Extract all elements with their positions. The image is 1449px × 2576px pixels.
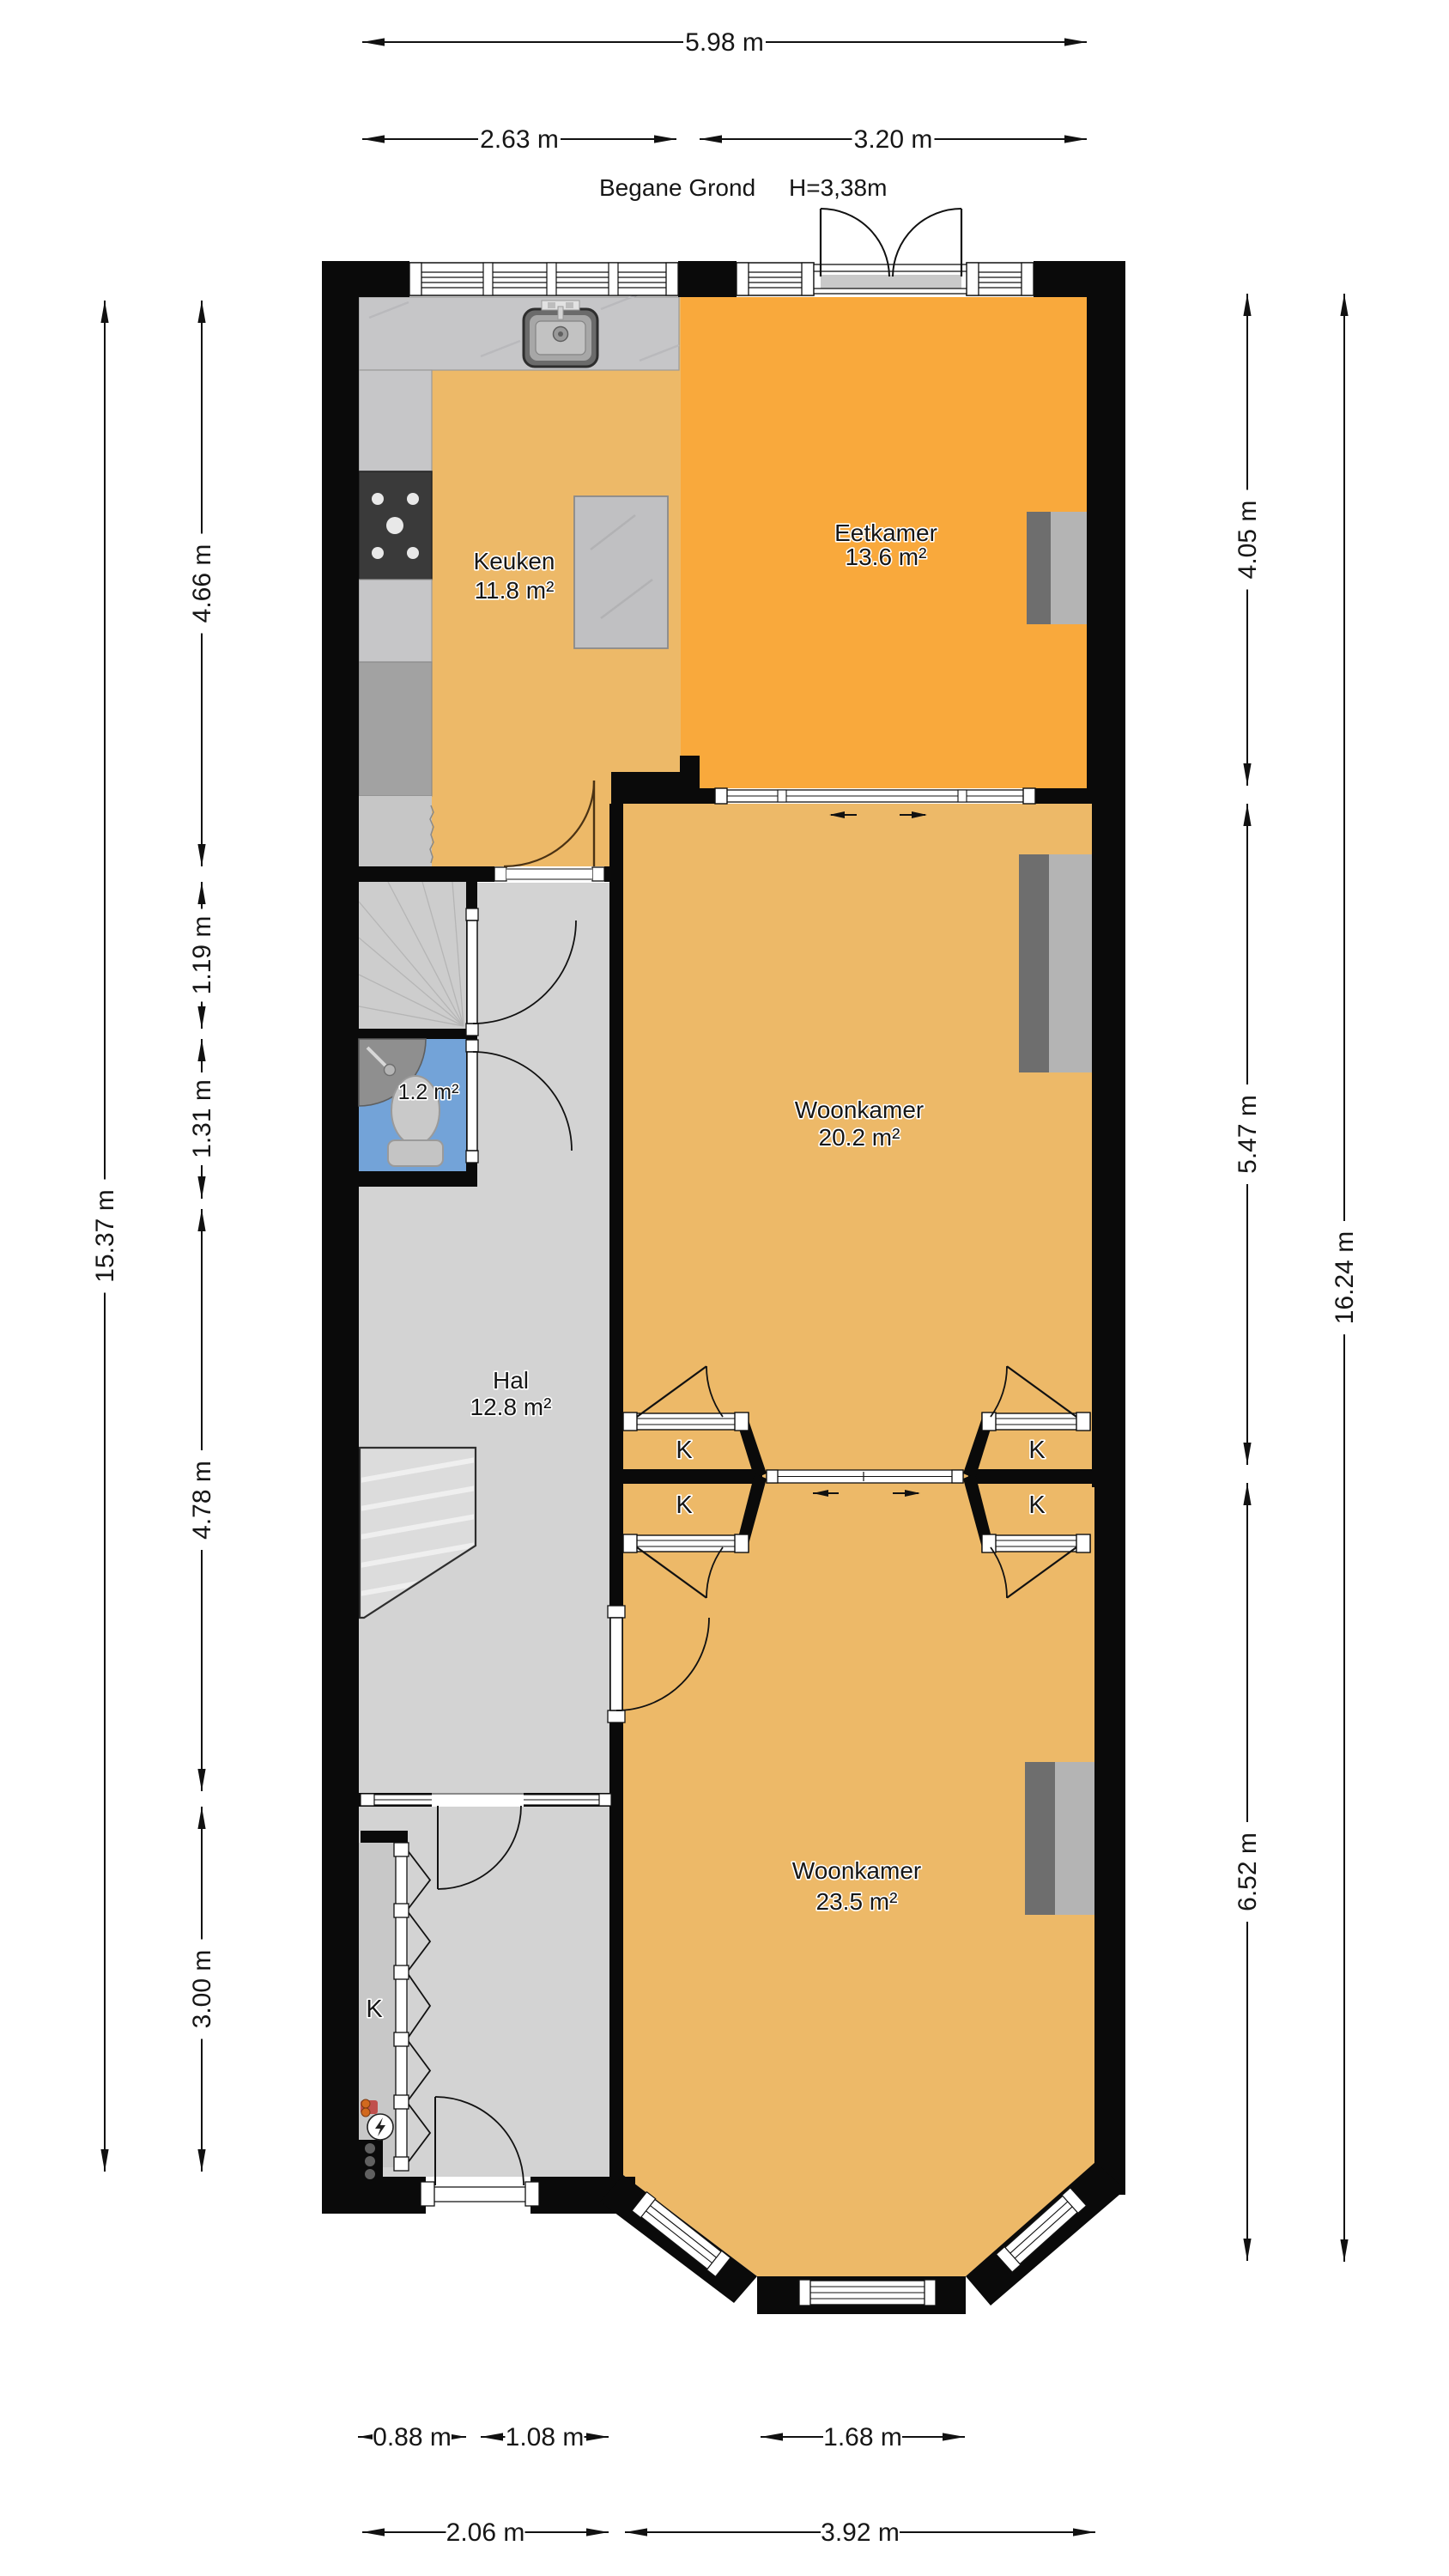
svg-text:20.2 m²: 20.2 m²: [819, 1124, 900, 1151]
svg-text:3.20 m: 3.20 m: [854, 125, 933, 154]
svg-text:6.52 m: 6.52 m: [1234, 1832, 1262, 1911]
svg-text:5.47 m: 5.47 m: [1234, 1095, 1262, 1174]
svg-text:16.24 m: 16.24 m: [1331, 1231, 1359, 1324]
svg-text:23.5 m²: 23.5 m²: [816, 1888, 898, 1915]
svg-text:Woonkamer: Woonkamer: [792, 1857, 921, 1884]
svg-text:0.88 m: 0.88 m: [373, 2423, 452, 2451]
svg-text:Eetkamer: Eetkamer: [834, 519, 937, 546]
svg-text:Woonkamer: Woonkamer: [795, 1097, 924, 1123]
svg-text:K: K: [366, 1996, 383, 2023]
svg-text:4.05 m: 4.05 m: [1234, 501, 1262, 580]
svg-text:K: K: [1028, 1492, 1046, 1519]
svg-text:2.06 m: 2.06 m: [446, 2518, 525, 2547]
svg-text:K: K: [676, 1492, 693, 1519]
svg-text:K: K: [676, 1437, 693, 1464]
svg-text:12.8 m²: 12.8 m²: [470, 1394, 552, 1420]
svg-text:Hal: Hal: [493, 1367, 529, 1394]
svg-text:4.66 m: 4.66 m: [188, 544, 216, 623]
svg-text:1.2 m²: 1.2 m²: [398, 1080, 459, 1104]
svg-text:11.8 m²: 11.8 m²: [475, 577, 555, 604]
svg-text:3.00 m: 3.00 m: [188, 1950, 216, 2029]
svg-text:1.08 m: 1.08 m: [506, 2423, 585, 2451]
svg-text:Begane Grond: Begane Grond: [599, 174, 755, 201]
svg-text:15.37 m: 15.37 m: [91, 1189, 119, 1282]
svg-text:3.92 m: 3.92 m: [821, 2518, 900, 2547]
svg-text:1.31 m: 1.31 m: [188, 1079, 216, 1158]
svg-text:1.68 m: 1.68 m: [823, 2423, 902, 2451]
svg-text:H=3,38m: H=3,38m: [789, 174, 887, 201]
svg-text:1.19 m: 1.19 m: [188, 916, 216, 995]
svg-text:K: K: [1028, 1437, 1046, 1464]
svg-text:Keuken: Keuken: [474, 548, 555, 574]
svg-text:2.63 m: 2.63 m: [480, 125, 559, 154]
svg-text:5.98 m: 5.98 m: [685, 28, 764, 57]
svg-text:13.6 m²: 13.6 m²: [846, 544, 927, 570]
svg-text:4.78 m: 4.78 m: [188, 1461, 216, 1540]
